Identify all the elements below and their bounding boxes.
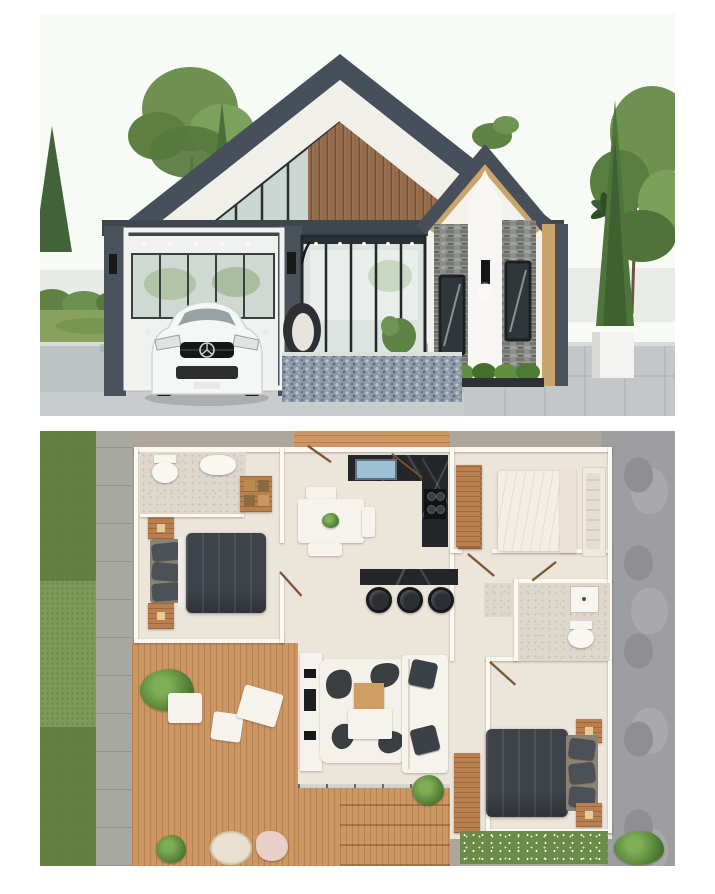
vanity-basket [244,495,255,506]
coffee-table-wood [354,683,384,709]
exterior-scene [40,14,675,416]
burner [436,505,445,514]
bush [614,831,664,865]
wardrobe [456,465,480,547]
bed-dark-left [186,533,266,613]
pillow [151,562,180,581]
wall [134,447,138,643]
nightstand-knob [157,612,165,620]
sink [200,455,236,475]
toilet-bowl [152,462,178,483]
pebble-walkway [282,352,462,402]
coffee-table-white [348,709,392,739]
hedge-top [40,431,96,581]
pillow [568,737,596,760]
driveway [602,431,675,866]
bar-stool [397,587,423,613]
bed-white [498,471,562,551]
floor-plan-panel [40,431,675,866]
wall [134,639,284,643]
wall [280,447,284,543]
round-rug [210,831,252,865]
wardrobe [454,753,480,833]
pillow [151,582,180,601]
poster-page [0,0,715,894]
sofa-cushion [408,659,439,690]
wall [450,447,454,661]
tv-equipment [304,669,316,678]
burner [427,492,436,501]
bar-stool [366,587,392,613]
pillow [568,762,596,785]
deck-plant-small [156,835,186,863]
dining-chair [308,543,342,556]
vanity-basket [258,480,269,491]
hedge-bottom [40,727,96,866]
kitchen-sink [355,459,397,480]
bed-white-pillow [586,473,600,549]
nightstand-knob [157,524,165,532]
breakfast-bar [360,569,458,585]
tv-equipment [304,731,316,740]
bath-mat-tile [484,583,514,617]
wall [450,549,462,553]
exterior-render-panel [40,14,675,416]
bar-stool [428,587,454,613]
burner [436,492,445,501]
sofa-plant [412,775,444,805]
pillow [151,542,181,562]
vanity-basket [244,480,255,491]
table-plant [322,513,339,528]
vanity-basket [258,495,269,506]
shower-drain [582,597,586,601]
tv-equipment [304,689,316,711]
burner [427,505,436,514]
toilet-bowl [568,628,594,648]
nightstand-knob [585,727,593,735]
dining-chair [362,507,375,537]
flower-bed [460,831,608,864]
lounge-chair [168,693,202,723]
nightstand-knob [585,811,593,819]
bed-dark-bottom [486,729,568,817]
wall [280,573,284,643]
bed-white-blanket [560,469,576,553]
accent-chair [256,831,288,861]
side-path [96,431,132,866]
